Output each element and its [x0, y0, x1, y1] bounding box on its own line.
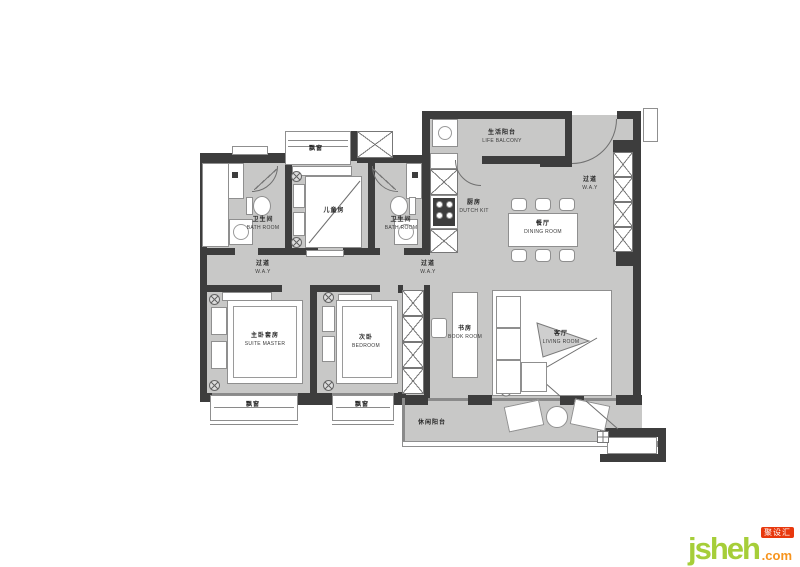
bath-counter: [228, 163, 244, 199]
balcony-table: [546, 406, 568, 428]
room-label-zh: 过道: [420, 261, 435, 269]
room-label-zh: 过道: [255, 261, 270, 269]
plant-icon: [323, 380, 334, 391]
wall-segment: [613, 140, 641, 152]
room-label-hall-left: 过道 W.A.Y: [255, 261, 270, 275]
logo-badge: 聚设汇: [761, 527, 794, 538]
sofa-seat: [496, 360, 521, 394]
room-label-bay-right: 飘窗: [355, 402, 369, 410]
floor-plan: 卫生间 BATH ROOM 卫生间 BATH ROOM 儿童房 飘窗 厨房 DU…: [0, 0, 800, 565]
wall-segment: [633, 261, 641, 398]
wall-segment: [422, 111, 572, 119]
shower-screen: [254, 168, 278, 190]
pillow: [322, 306, 335, 332]
room-label-zh: 客厅: [543, 331, 580, 339]
pillow: [293, 184, 305, 208]
bath-counter: [406, 163, 422, 199]
shoe-cabinet-icon: [613, 152, 633, 177]
room-label-leisure-balcony: 休闲阳台: [418, 420, 446, 428]
room-label-zh: 过道: [582, 177, 597, 185]
wardrobe-icon: [430, 229, 458, 253]
shoe-cabinet-icon: [613, 177, 633, 202]
room-label-hall-mid: 过道 W.A.Y: [420, 261, 435, 275]
room-label-en: LIVING ROOM: [543, 339, 580, 346]
room-label-life-balcony: 生活阳台 LIFE BALCONY: [482, 130, 521, 144]
wall-segment: [317, 285, 380, 292]
wardrobe-icon: [402, 290, 424, 316]
wall-segment: [205, 285, 282, 292]
toilet-icon: [390, 196, 408, 216]
shower-screen: [372, 168, 396, 190]
burner-icon: [436, 201, 443, 208]
utility-shaft: [202, 163, 229, 247]
wall-segment: [616, 395, 642, 405]
room-label-zh: 飘窗: [355, 402, 369, 410]
room-label-zh: 书房: [448, 326, 482, 334]
pillow: [293, 212, 305, 236]
room-label-zh: 卫生间: [247, 217, 280, 225]
room-label-bath-second: 卫生间 BATH ROOM: [385, 217, 418, 231]
room-label-zh: 飘窗: [309, 146, 323, 154]
balcony-door-arc: [455, 160, 481, 186]
wall-segment: [600, 428, 666, 437]
plant-icon: [209, 294, 220, 305]
sofa-chaise: [521, 362, 547, 392]
dining-chair: [511, 198, 527, 211]
wall-segment: [600, 454, 666, 462]
room-label-living: 客厅 LIVING ROOM: [543, 331, 580, 345]
wall-segment: [396, 395, 428, 405]
room-label-zh: 休闲阳台: [418, 420, 446, 428]
room-label-en: SUITE MASTER: [245, 341, 286, 348]
room-label-bath-master: 卫生间 BATH ROOM: [247, 217, 280, 231]
room-label-zh: 主卧套房: [245, 333, 286, 341]
wall-segment: [468, 395, 492, 405]
faucet-icon: [232, 172, 238, 178]
shoe-cabinet-icon: [613, 202, 633, 227]
washer-drum: [438, 126, 452, 140]
room-label-second-bedroom: 次卧 BEDROOM: [352, 335, 380, 349]
room-label-en: W.A.Y: [582, 185, 597, 192]
room-label-en: W.A.Y: [255, 269, 270, 276]
room-label-entry-hall: 过道 W.A.Y: [582, 177, 597, 191]
high-cabinet: [232, 146, 268, 155]
sofa-seat: [496, 328, 521, 360]
room-label-en: LIFE BALCONY: [482, 138, 521, 145]
logo-brand-text: jsheh: [688, 531, 759, 567]
wall-segment: [205, 248, 235, 255]
room-label-en: BATH ROOM: [247, 225, 280, 232]
plant-icon: [323, 292, 334, 303]
toilet-tank: [409, 197, 416, 215]
toilet-tank: [246, 197, 253, 215]
room-label-zh: 厨房: [459, 200, 488, 208]
toilet-icon: [253, 196, 271, 216]
balcony-side-rail: [402, 398, 405, 444]
wardrobe-icon: [402, 342, 424, 368]
room-label-study: 书房 BOOK ROOM: [448, 326, 482, 340]
dining-chair: [559, 198, 575, 211]
wardrobe-icon: [357, 131, 393, 158]
wall-segment: [422, 111, 430, 253]
room-label-kids-bay: 飘窗: [309, 146, 323, 154]
pillow: [211, 341, 227, 369]
sofa-seat: [496, 296, 521, 328]
room-label-zh: 次卧: [352, 335, 380, 343]
drain-icon: [597, 431, 609, 443]
wardrobe-icon: [430, 169, 458, 195]
dining-chair: [535, 249, 551, 262]
dining-chair: [511, 249, 527, 262]
room-label-en: BEDROOM: [352, 343, 380, 350]
bed-bench: [306, 250, 344, 257]
room-label-kitchen: 厨房 DUTCH KIT: [459, 200, 488, 214]
room-label-en: W.A.Y: [420, 269, 435, 276]
room-label-en: BOOK ROOM: [448, 334, 482, 341]
room-label-bay-left: 飘窗: [246, 402, 260, 410]
room-label-zh: 卫生间: [385, 217, 418, 225]
burner-icon: [436, 212, 443, 219]
shoe-cabinet-icon: [613, 227, 633, 252]
room-label-zh: 生活阳台: [482, 130, 521, 138]
plant-icon: [291, 237, 302, 248]
room-label-en: DINING ROOM: [524, 229, 562, 236]
wall-segment: [482, 156, 572, 164]
window-line: [288, 140, 348, 141]
ac-platform: [643, 108, 658, 142]
room-label-zh: 飘窗: [246, 402, 260, 410]
room-label-en: BATH ROOM: [385, 225, 418, 232]
desk-chair: [431, 318, 447, 338]
sliding-door-rail: [404, 398, 640, 401]
wardrobe-icon: [402, 368, 424, 394]
wall-segment: [633, 111, 641, 261]
burner-icon: [446, 201, 453, 208]
site-logo[interactable]: jsheh 聚设汇 .com: [688, 523, 794, 563]
faucet-icon: [412, 172, 418, 178]
burner-icon: [446, 212, 453, 219]
logo-tld-text: .com: [762, 548, 792, 563]
wall-segment: [424, 285, 430, 400]
room-label-zh: 餐厅: [524, 221, 562, 229]
dining-chair: [559, 249, 575, 262]
dining-chair: [535, 198, 551, 211]
room-label-en: DUTCH KIT: [459, 208, 488, 215]
room-label-master: 主卧套房 SUITE MASTER: [245, 333, 286, 347]
room-label-zh: 儿童房: [323, 208, 344, 216]
window-sill: [332, 424, 394, 425]
wardrobe-icon: [402, 316, 424, 342]
window-sill: [210, 424, 298, 425]
kitchen-sink: [430, 153, 458, 169]
room-label-dining: 餐厅 DINING ROOM: [524, 221, 562, 235]
entry-door-arc: [572, 119, 617, 164]
room-label-kids-room: 儿童房: [323, 208, 344, 216]
pillow: [211, 307, 227, 335]
pillow: [322, 336, 335, 362]
ac-platform: [607, 437, 657, 454]
plant-icon: [209, 380, 220, 391]
wall-segment: [310, 285, 317, 400]
plant-icon: [291, 171, 302, 182]
